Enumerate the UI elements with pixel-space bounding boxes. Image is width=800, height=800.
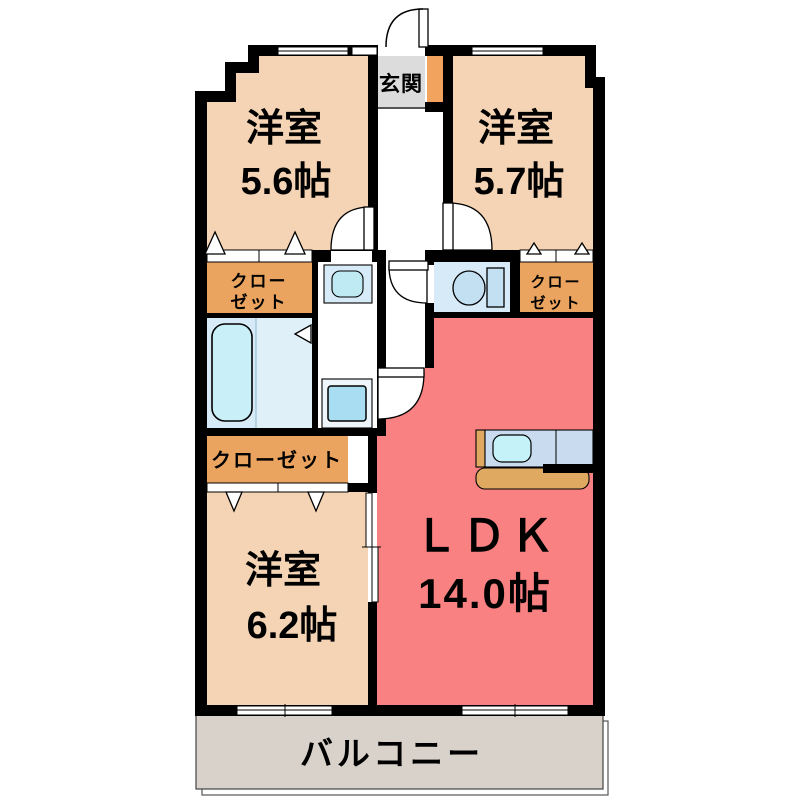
room56-door-leaf: [364, 207, 374, 250]
toilet-tank-icon: [487, 268, 504, 307]
kitchen-counter-side: [476, 430, 485, 467]
bathtub-icon: [212, 324, 252, 421]
entrance-door-arc: [386, 9, 423, 47]
room56-size: 5.6帖: [241, 161, 332, 203]
sliding-door-panel-1: [366, 493, 372, 547]
sliding-door-panel-2: [372, 547, 378, 602]
closet-left-label-2: ゼット: [231, 292, 288, 312]
room57-name: 洋室: [478, 107, 554, 150]
toilet-bowl-icon: [453, 271, 485, 305]
toilet-door-leaf: [389, 261, 428, 270]
ldk-door-leaf: [378, 368, 424, 377]
kitchen-sink-icon: [493, 435, 531, 462]
floor-plan-drawing: 洋室 5.6帖 洋室 5.7帖 玄関 クロー ゼット クロー ゼット クローゼッ…: [0, 0, 800, 800]
ldk-size: 14.0帖: [418, 570, 552, 617]
room62-size: 6.2帖: [247, 605, 338, 647]
ldk-name: ＬＤＫ: [414, 512, 558, 561]
window-entrance-side: [352, 47, 377, 55]
closet-bottom-label: クローゼット: [211, 448, 343, 472]
closet-right-label-2: ゼット: [530, 294, 581, 312]
room-west-6-2-floor: [207, 492, 368, 705]
room57-size: 5.7帖: [474, 161, 565, 203]
toilet-door-arc: [389, 266, 427, 303]
closet-left-label-1: クロー: [231, 272, 288, 291]
room57-door-leaf: [443, 203, 453, 250]
room62-name: 洋室: [245, 549, 321, 592]
shoe-cabinet: [427, 56, 443, 102]
balcony-label: バルコニー: [300, 735, 484, 772]
room56-name: 洋室: [246, 107, 322, 150]
floor-plan: 洋室 5.6帖 洋室 5.7帖 玄関 クロー ゼット クロー ゼット クローゼッ…: [0, 0, 800, 800]
closet-right-label-1: クロー: [530, 274, 581, 291]
entrance-label: 玄関: [379, 72, 423, 96]
entrance-door-leaf: [419, 9, 428, 47]
